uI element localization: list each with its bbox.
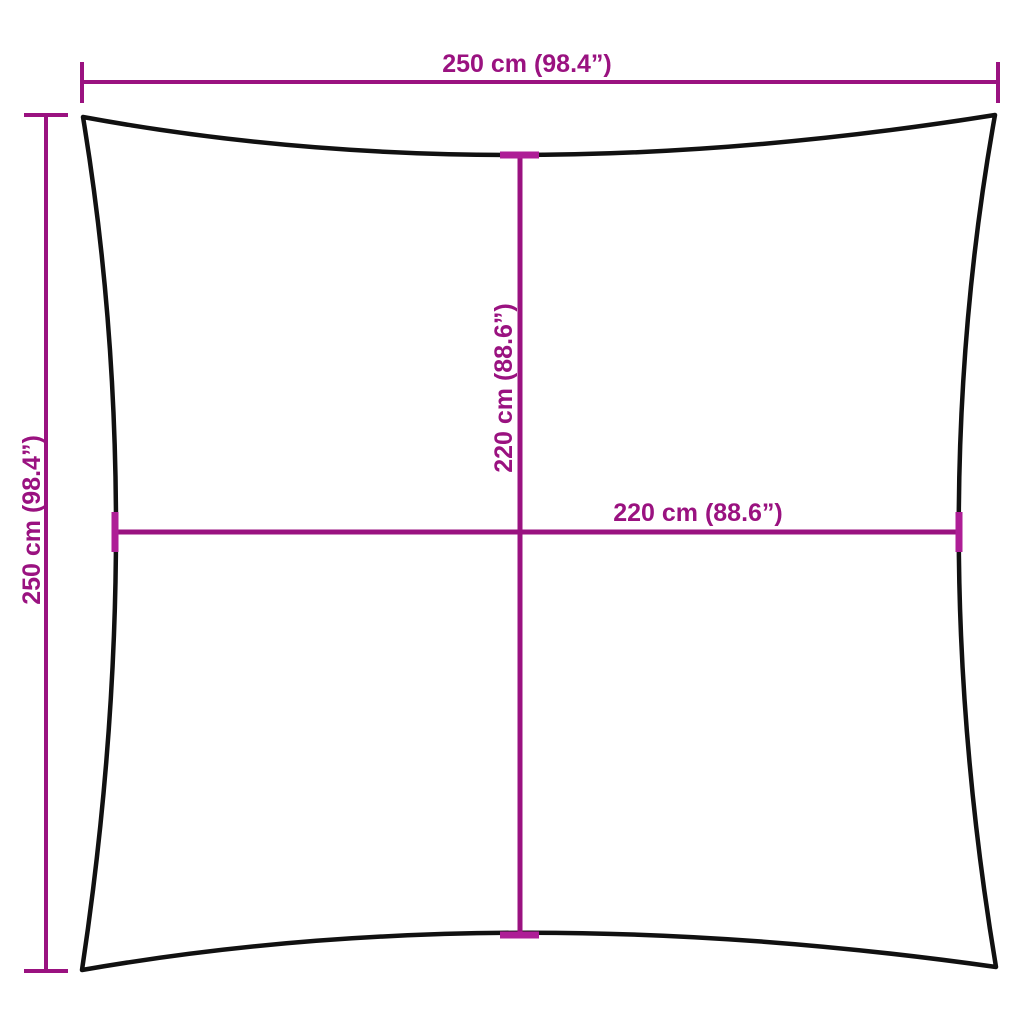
left-dimension-label: 250 cm (98.4”) bbox=[18, 435, 46, 605]
shade-sail-outline bbox=[82, 115, 996, 970]
diagram-canvas: 250 cm (98.4”) 250 cm (98.4”) 220 cm (88… bbox=[0, 0, 1024, 1024]
inner-horizontal-dimension bbox=[115, 512, 960, 552]
top-dimension-label: 250 cm (98.4”) bbox=[442, 50, 612, 78]
inner-vertical-dimension bbox=[500, 155, 539, 935]
product-dimension-diagram: 250 cm (98.4”) 250 cm (98.4”) 220 cm (88… bbox=[0, 0, 1024, 1024]
inner-horizontal-dimension-label: 220 cm (88.6”) bbox=[613, 499, 783, 527]
inner-vertical-dimension-label: 220 cm (88.6”) bbox=[490, 303, 518, 473]
